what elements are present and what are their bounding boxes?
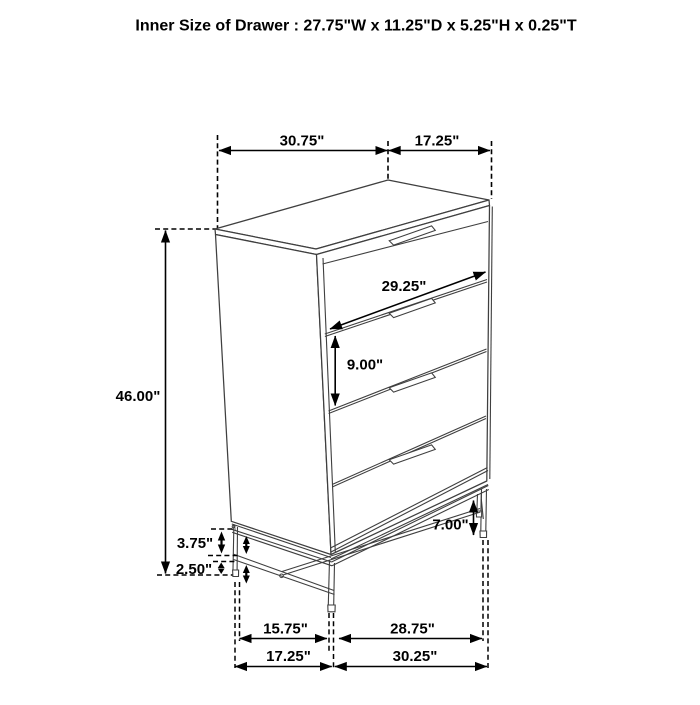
svg-text:30.75": 30.75" — [280, 133, 325, 150]
svg-text:3.75": 3.75" — [177, 535, 213, 552]
svg-text:17.25": 17.25" — [415, 133, 460, 150]
svg-text:15.75": 15.75" — [263, 621, 308, 638]
svg-text:30.25": 30.25" — [393, 648, 438, 665]
svg-text:7.00": 7.00" — [432, 517, 468, 534]
svg-text:2.50": 2.50" — [176, 561, 212, 578]
svg-text:28.75": 28.75" — [390, 621, 435, 638]
svg-text:46.00": 46.00" — [116, 388, 161, 405]
svg-text:9.00": 9.00" — [347, 357, 383, 374]
svg-text:Inner Size of Drawer : 27.75"W: Inner Size of Drawer : 27.75"W x 11.25"D… — [135, 18, 576, 35]
svg-text:17.25": 17.25" — [266, 648, 311, 665]
svg-text:29.25": 29.25" — [382, 278, 427, 295]
